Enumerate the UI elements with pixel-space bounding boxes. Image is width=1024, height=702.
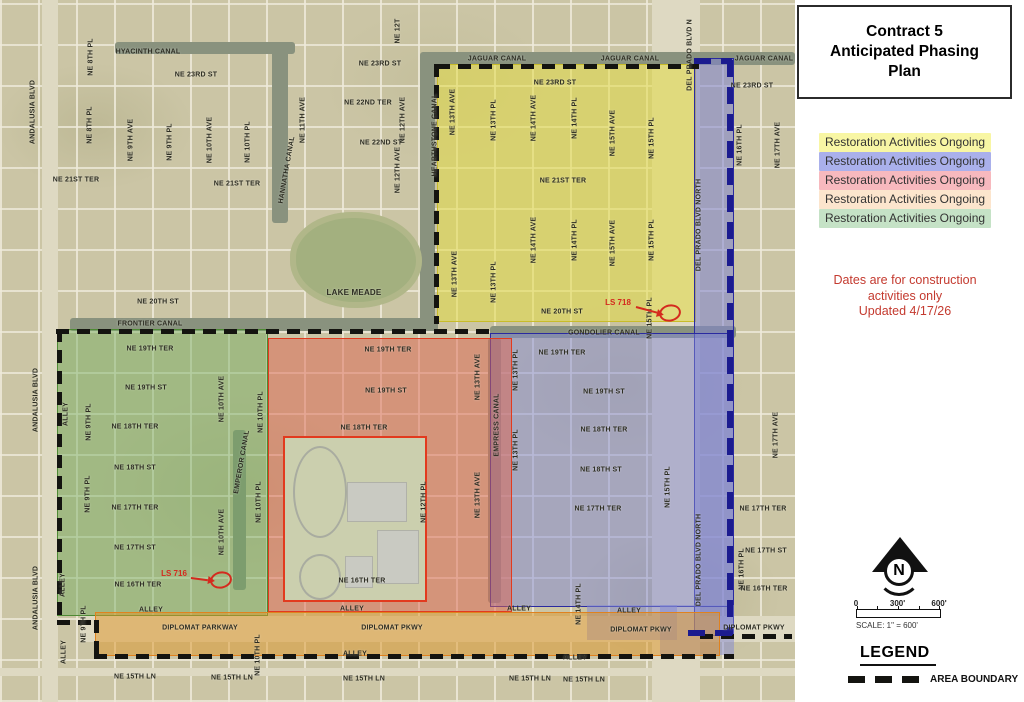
area-boundary-symbol [848,676,922,683]
ls-annotation-label: LS 716 [161,570,187,578]
note-line: activities only [795,289,1015,305]
north-letter: N [884,556,914,586]
legend-item: Restoration Activities Ongoing [795,173,1015,187]
map-area: HYACINTH CANALNE 23RD STNE 23RD STNE 22N… [0,0,795,702]
legend-item-label: Restoration Activities Ongoing [819,152,991,171]
legend-item: Restoration Activities Ongoing [795,211,1015,225]
legend-item: Restoration Activities Ongoing [795,154,1015,168]
note-line: Dates are for construction [795,273,1015,289]
annotation-arrow [636,306,658,314]
side-panel: Contract 5 Anticipated Phasing Plan Rest… [795,0,1024,702]
legend-item-label: Restoration Activities Ongoing [819,133,991,152]
legend-item-label: Restoration Activities Ongoing [819,209,991,228]
scale-ticks: 0300'600' [856,599,946,608]
legend-item: Restoration Activities Ongoing [795,192,1015,206]
annotation-ellipse [208,569,233,590]
legend-item: Restoration Activities Ongoing [795,135,1015,149]
page-title: Contract 5 Anticipated Phasing Plan [823,22,986,82]
annotation-arrow [191,577,208,581]
map-annotations-layer: LS 718LS 716 [0,0,795,702]
scale-label: SCALE: 1" = 600' [856,621,946,630]
annotation-ellipse [657,302,682,323]
north-arrow: N [872,537,928,593]
legend-item-label: Restoration Activities Ongoing [819,171,991,190]
legend-list: Restoration Activities OngoingRestoratio… [795,135,1015,230]
title-box: Contract 5 Anticipated Phasing Plan [797,5,1012,99]
scale-bar: 0300'600' SCALE: 1" = 600' [856,599,946,630]
notes: Dates are for constructionactivities onl… [795,273,1015,320]
area-boundary-label: AREA BOUNDARY [930,674,1018,685]
legend-heading: LEGEND [860,644,936,666]
legend-item-label: Restoration Activities Ongoing [819,190,991,209]
ls-annotation-label: LS 718 [605,299,631,307]
note-line: Updated 4/17/26 [795,304,1015,320]
scale-bar-graphic [856,609,941,618]
phasing-plan-page: HYACINTH CANALNE 23RD STNE 23RD STNE 22N… [0,0,1024,702]
